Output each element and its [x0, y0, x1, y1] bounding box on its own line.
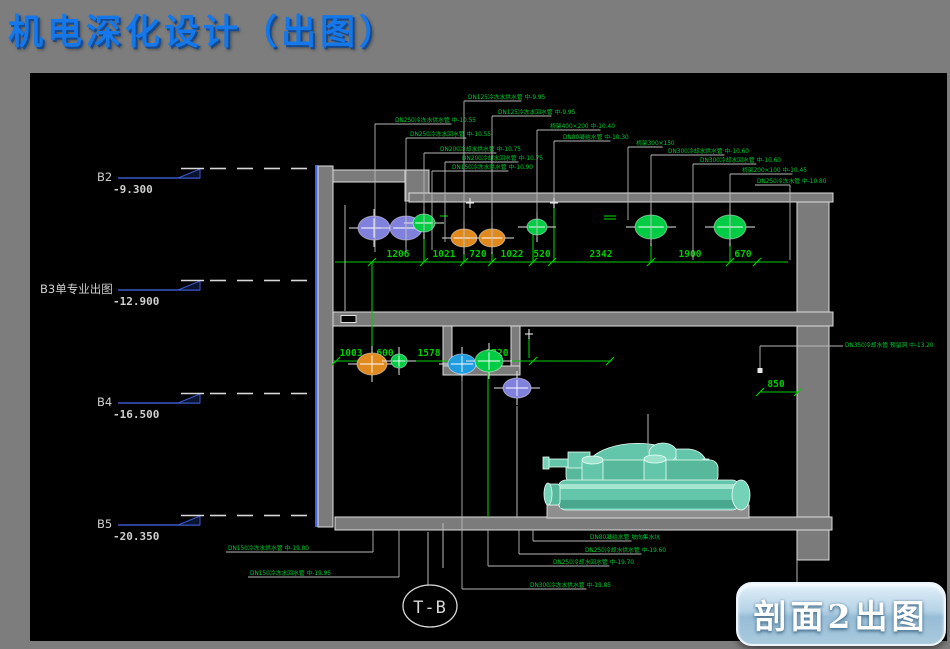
dim-mid-value: 1003 — [340, 348, 363, 359]
pipe-annotation: DN250冷却水供水管 中-19.60 — [585, 546, 666, 554]
level-elevation: -9.300 — [113, 183, 153, 196]
level-triangle-marker — [178, 394, 200, 403]
pipe-annotation: DN250冷冻水回水管 中-10.55 — [410, 130, 491, 138]
chiller-end-cap — [732, 480, 750, 510]
level-name: B5 — [97, 517, 112, 531]
level-elevation: -20.350 — [113, 530, 159, 543]
pipe-annotation: DN80凝结水管 中-10.30 — [563, 133, 629, 141]
pipe-annotation: DN150冷冻水回水管 中-19.95 — [250, 569, 331, 577]
level-name: B3单专业出图 — [40, 282, 113, 296]
right-wall — [797, 202, 829, 560]
dim-upper-value: 520 — [533, 249, 550, 260]
pipe-annotation: DN80凝结水管 坡向集水坑 — [590, 533, 660, 541]
pipe-annotation: DN300冷却水供水管 中-10.60 — [668, 147, 749, 155]
chiller-left-pipe-cap — [543, 457, 549, 469]
dim-upper-value: 1022 — [501, 249, 524, 260]
pipe-annotation: DN125冷冻水供水管 中-9.95 — [468, 93, 546, 101]
dim-mid-value: 1578 — [418, 348, 441, 359]
chiller-left-stub-cap — [544, 483, 552, 505]
top-beam-left — [333, 170, 409, 182]
dim-upper-value: 2342 — [590, 249, 613, 260]
pipe-annotation: DN250冷冻水管 中-10.80 — [757, 177, 827, 185]
chiller-highlight — [560, 484, 738, 489]
slide: 机电深化设计（出图） — [0, 0, 950, 649]
middle-slab — [333, 312, 833, 326]
pipe-annotation: DN300冷冻水供水管 中-19.85 — [530, 581, 611, 589]
level-triangle-marker — [178, 516, 200, 525]
dim-upper-value: 1900 — [679, 249, 702, 260]
pipe-annotation: DN150冷冻水供水管 中-19.80 — [228, 544, 309, 552]
pipe-annotation: 桥架400×200 中-10.40 — [550, 122, 615, 130]
pipe-annotation: 桥架300×150 — [636, 139, 675, 147]
left-wall — [318, 166, 333, 527]
section-2-output-label: 剖面2出图 — [754, 590, 929, 638]
slab-sleeve — [341, 316, 356, 323]
chiller-cylinder-1-top — [582, 456, 603, 464]
grid-bubble-label: T-B — [413, 598, 447, 618]
section-2-output-button[interactable]: 剖面2出图 — [736, 582, 946, 646]
grid-bubble: T-B — [403, 585, 457, 627]
level-elevation: -12.900 — [113, 295, 159, 308]
pipe-annotation: DN125冷冻水回水管 中-9.95 — [498, 108, 576, 116]
level-name: B4 — [97, 395, 112, 409]
bottom-slab — [335, 517, 832, 530]
pipe-annotation: DN250冷却水回水管 中-19.70 — [553, 558, 634, 566]
top-beam-main — [409, 193, 833, 202]
dim-upper-value: 720 — [469, 249, 486, 260]
pipe-annotation: 桥架200×100 中-10.45 — [742, 166, 807, 174]
dim-offset-value: 850 — [767, 379, 784, 390]
pipe-annotation: DN200冷却水回水管 中-10.75 — [462, 154, 543, 162]
level-triangle-marker — [178, 281, 200, 290]
pipe-annotation: DN300冷却水回水管 中-10.60 — [700, 156, 781, 164]
level-name: B2 — [97, 170, 112, 184]
level-triangle-marker — [178, 169, 200, 178]
chiller-unit — [543, 443, 750, 510]
pipe-annotation: DN200冷却水供水管 中-10.75 — [440, 145, 521, 153]
cad-drawing: B2-9.300B3单专业出图-12.900B4-16.500B5-20.350… — [0, 0, 950, 649]
chiller-shadow — [560, 500, 738, 508]
pipe-annotation: DN150冷冻水供水管 中-10.90 — [452, 163, 533, 171]
level-elevation: -16.500 — [113, 408, 159, 421]
dim-upper-value: 670 — [734, 249, 751, 260]
dim-upper-value: 1021 — [433, 249, 456, 260]
pipe-annotation: DN350冷却水管 预留洞 中-13.20 — [845, 341, 934, 349]
leader-end-dot — [758, 368, 763, 373]
chiller-cylinder-2-top — [644, 455, 666, 463]
